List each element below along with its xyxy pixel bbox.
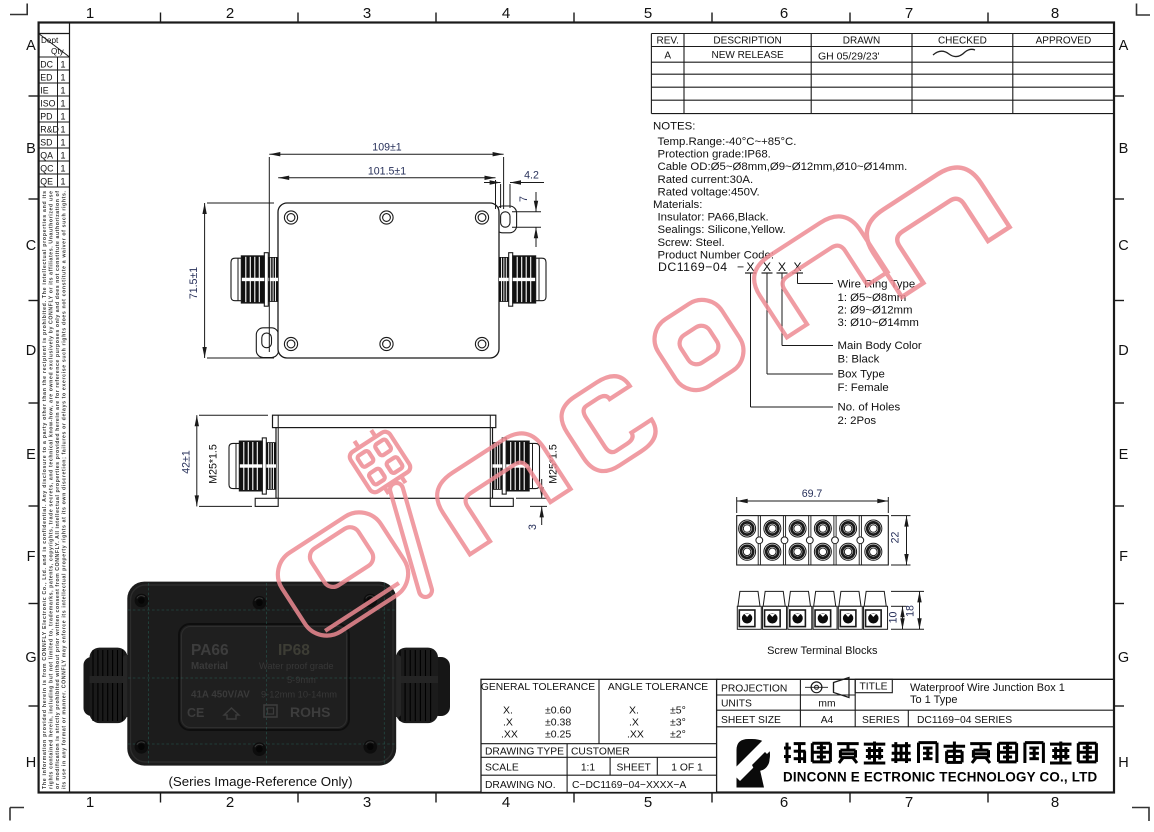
svg-text:NOTES:: NOTES:: [653, 121, 695, 133]
svg-text:SHEET SIZE: SHEET SIZE: [721, 715, 781, 726]
svg-text:Box Type: Box Type: [838, 369, 885, 381]
svg-text:Rated voltage:450V.: Rated voltage:450V.: [658, 187, 760, 199]
svg-text:B: B: [26, 141, 36, 157]
svg-text:B: B: [1119, 141, 1129, 157]
svg-text:PROJECTION: PROJECTION: [721, 683, 787, 694]
svg-text:rights contained herein, inclu: rights contained herein, including but n…: [49, 191, 55, 789]
svg-text:H: H: [1118, 755, 1128, 771]
svg-text:Rated current:30A.: Rated current:30A.: [658, 174, 754, 186]
svg-text:D: D: [1118, 343, 1128, 359]
svg-text:ROHS: ROHS: [290, 704, 330, 720]
svg-text:Material: Material: [191, 661, 228, 672]
svg-text:Dept: Dept: [41, 36, 59, 45]
svg-text:1: 1: [60, 125, 65, 135]
svg-text:B: Black: B: Black: [838, 353, 880, 365]
svg-text:SD: SD: [40, 138, 52, 148]
svg-text:M25*1.5: M25*1.5: [208, 444, 220, 484]
svg-text:DINCONN E ECTRONIC TECHNOLOGY: DINCONN E ECTRONIC TECHNOLOGY CO., LTD: [783, 770, 1097, 785]
svg-text:H: H: [26, 755, 36, 771]
svg-text:1 OF 1: 1 OF 1: [671, 762, 703, 773]
svg-text:±2°: ±2°: [670, 728, 686, 740]
svg-text:41A 450V/AV: 41A 450V/AV: [191, 690, 250, 701]
svg-text:mm: mm: [818, 699, 835, 710]
svg-text:7: 7: [518, 196, 530, 202]
svg-text:1: 1: [60, 177, 65, 187]
svg-text:CE: CE: [187, 706, 204, 720]
svg-text:G: G: [25, 650, 36, 666]
svg-text:Water proof grade: Water proof grade: [259, 661, 334, 671]
svg-text:7: 7: [905, 5, 913, 22]
svg-text:1: 1: [60, 73, 65, 83]
svg-text:1: 1: [60, 86, 65, 96]
svg-text:SERIES: SERIES: [862, 715, 900, 726]
svg-text:Main Body Color: Main Body Color: [838, 340, 922, 352]
svg-text:.X: .X: [503, 717, 513, 729]
svg-text:69.7: 69.7: [802, 488, 823, 500]
svg-text:IE: IE: [40, 86, 48, 96]
svg-text:SHEET: SHEET: [617, 762, 652, 773]
svg-text:2: 2: [226, 5, 234, 22]
svg-text:C: C: [1118, 238, 1128, 254]
svg-text:G: G: [1118, 650, 1129, 666]
svg-text:1: 1: [86, 5, 94, 22]
svg-text:Temp.Range:-40°C~+85°C.: Temp.Range:-40°C~+85°C.: [658, 136, 797, 148]
svg-text:1: 1: [60, 138, 65, 148]
svg-text:−: −: [737, 260, 744, 274]
svg-text:ANGLE TOLERANCE: ANGLE TOLERANCE: [608, 682, 708, 693]
svg-text:F: Female: F: Female: [838, 382, 889, 394]
svg-text:DRAWING NO.: DRAWING NO.: [485, 780, 556, 791]
svg-text:D: D: [26, 343, 36, 359]
svg-text:Screw Terminal Blocks: Screw Terminal Blocks: [767, 645, 878, 657]
svg-text:or modification is strictly pr: or modification is strictly prohibited w…: [55, 191, 61, 789]
svg-text:E: E: [1119, 447, 1129, 463]
svg-text:1: 1: [60, 112, 65, 122]
svg-text:X: X: [778, 260, 786, 274]
svg-text:ED: ED: [40, 73, 52, 83]
svg-text:Sealings: Silicone,Yellow.: Sealings: Silicone,Yellow.: [658, 224, 786, 236]
svg-text:its use in any format or manne: its use in any format or manner. CONNFLY…: [61, 190, 67, 789]
svg-text:6: 6: [780, 794, 788, 811]
svg-text:2: 2: [226, 794, 234, 811]
svg-text:QA: QA: [40, 151, 53, 161]
svg-text:4: 4: [502, 5, 510, 22]
svg-text:To 1 Type: To 1 Type: [910, 694, 958, 706]
svg-text:(Series Image-Reference Only): (Series Image-Reference Only): [168, 774, 352, 789]
svg-text:DC1169−04 SERIES: DC1169−04 SERIES: [917, 715, 1012, 726]
svg-text:71.5±1: 71.5±1: [188, 267, 200, 299]
svg-text:3: 3: [527, 524, 539, 530]
svg-text:F: F: [27, 549, 36, 565]
svg-text:A: A: [1119, 38, 1129, 54]
svg-text:±0.60: ±0.60: [545, 705, 571, 717]
svg-text:NEW RELEASE: NEW RELEASE: [711, 50, 784, 61]
svg-text:42±1: 42±1: [181, 450, 193, 474]
svg-text:2: 2Pos: 2: 2Pos: [838, 415, 877, 427]
svg-text:1: 1: [60, 99, 65, 109]
svg-text:C: C: [26, 238, 36, 254]
svg-text:E: E: [26, 447, 36, 463]
svg-text:1: 1: [60, 60, 65, 70]
svg-text:3: Ø10~Ø14mm: 3: Ø10~Ø14mm: [838, 317, 919, 329]
svg-text:DC1169−04: DC1169−04: [658, 260, 728, 274]
svg-text:6: 6: [780, 5, 788, 22]
svg-text:ISO: ISO: [40, 99, 55, 109]
svg-text:GH 05/29/23': GH 05/29/23': [818, 51, 880, 63]
svg-text:GENERAL TOLERANCE: GENERAL TOLERANCE: [481, 682, 595, 693]
svg-text:A4: A4: [821, 715, 834, 726]
svg-text:Cable OD:Ø5~Ø8mm,Ø9~Ø12mm,Ø10~: Cable OD:Ø5~Ø8mm,Ø9~Ø12mm,Ø10~Ø14mm.: [658, 161, 908, 173]
svg-text:PD: PD: [40, 112, 52, 122]
svg-text:Materials:: Materials:: [653, 199, 702, 211]
svg-text:1: 1: [60, 151, 65, 161]
svg-text:5-9mm: 5-9mm: [287, 675, 316, 685]
svg-text:Qty: Qty: [51, 47, 65, 56]
svg-text:109±1: 109±1: [372, 142, 401, 154]
svg-text:5: 5: [644, 5, 652, 22]
svg-text:PA66: PA66: [191, 642, 229, 659]
svg-text:UNITS: UNITS: [721, 699, 752, 710]
svg-text:1: 1: [60, 164, 65, 174]
svg-text:SCALE: SCALE: [485, 762, 519, 773]
svg-text:A: A: [664, 51, 671, 62]
svg-text:1:1: 1:1: [581, 762, 596, 773]
svg-text:DRAWN: DRAWN: [843, 36, 880, 47]
svg-text:±3°: ±3°: [670, 717, 686, 729]
svg-text:1: Ø5~Ø8mm: 1: Ø5~Ø8mm: [838, 292, 907, 304]
svg-text:1: 1: [86, 794, 94, 811]
svg-text:Screw: Steel.: Screw: Steel.: [658, 237, 725, 249]
svg-text:4.2: 4.2: [524, 170, 539, 182]
svg-text:X.: X.: [503, 705, 513, 717]
svg-text:A: A: [26, 38, 36, 54]
svg-text:5: 5: [644, 794, 652, 811]
svg-text:±0.38: ±0.38: [545, 717, 571, 729]
svg-text:18: 18: [905, 605, 917, 617]
svg-text:8: 8: [1051, 794, 1059, 811]
svg-text:IP68: IP68: [278, 642, 310, 659]
svg-text:CUSTOMER: CUSTOMER: [571, 746, 630, 757]
svg-text:C−DC1169−04−XXXX−A: C−DC1169−04−XXXX−A: [572, 780, 686, 791]
svg-text:±0.25: ±0.25: [545, 728, 571, 740]
svg-text:10: 10: [888, 612, 900, 624]
svg-text:DC: DC: [40, 60, 53, 70]
svg-text:QC: QC: [40, 164, 54, 174]
svg-text:No. of Holes: No. of Holes: [838, 402, 901, 414]
svg-text:QE: QE: [40, 177, 53, 187]
svg-text:.XX: .XX: [627, 728, 644, 740]
svg-text:3: 3: [363, 794, 371, 811]
svg-text:F: F: [1119, 549, 1128, 565]
svg-text:Protection grade:IP68.: Protection grade:IP68.: [658, 149, 771, 161]
svg-text:3: 3: [363, 5, 371, 22]
svg-text:9-12mm 10-14mm: 9-12mm 10-14mm: [261, 690, 337, 700]
svg-text:22: 22: [890, 532, 902, 544]
svg-text:4: 4: [502, 794, 510, 811]
svg-text:Insulator: PA66,Black.: Insulator: PA66,Black.: [658, 211, 769, 223]
svg-text:TITLE: TITLE: [860, 682, 888, 693]
svg-text:DRAWING TYPE: DRAWING TYPE: [485, 746, 564, 757]
svg-text:CHECKED: CHECKED: [938, 36, 987, 47]
svg-text:.X: .X: [629, 717, 639, 729]
svg-text:2: Ø9~Ø12mm: 2: Ø9~Ø12mm: [838, 305, 913, 317]
svg-text:Waterproof Wire Junction Bo: Waterproof Wire Junction Box 1: [910, 682, 1065, 694]
svg-text:X.: X.: [629, 705, 639, 717]
svg-text:8: 8: [1051, 5, 1059, 22]
svg-text:REV.: REV.: [656, 36, 678, 47]
svg-text:R&D: R&D: [40, 125, 59, 135]
svg-text:.XX: .XX: [501, 728, 518, 740]
svg-text:±5°: ±5°: [670, 705, 686, 717]
svg-text:101.5±1: 101.5±1: [368, 166, 406, 178]
svg-text:APPROVED: APPROVED: [1036, 36, 1092, 47]
svg-text:DESCRIPTION: DESCRIPTION: [713, 36, 781, 47]
svg-text:The information provided herei: The information provided herein is from …: [42, 191, 48, 789]
svg-text:7: 7: [905, 794, 913, 811]
